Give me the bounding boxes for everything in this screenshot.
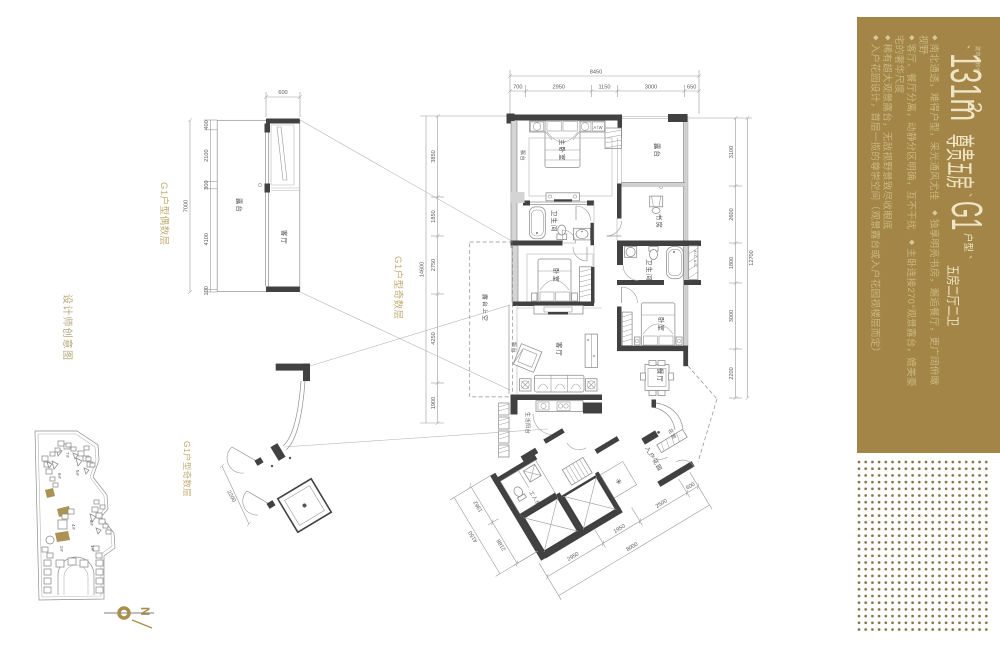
svg-text:3000: 3000 [645, 85, 657, 91]
svg-text:飘台: 飘台 [519, 150, 526, 161]
svg-text:2750: 2750 [431, 259, 437, 271]
svg-text:2950: 2950 [552, 85, 564, 91]
svg-text:A/W: A/W [594, 125, 604, 130]
svg-text:4250: 4250 [431, 332, 437, 344]
svg-text:客厅: 客厅 [280, 230, 289, 245]
svg-text:1#: 1# [90, 545, 95, 551]
svg-text:卫生间: 卫生间 [645, 259, 654, 282]
svg-text:650: 650 [687, 85, 696, 91]
svg-text:飘台: 飘台 [510, 342, 517, 353]
svg-text:3100: 3100 [729, 146, 735, 158]
svg-text:A/C A/C: A/C A/C [693, 250, 697, 268]
svg-text:主卧室: 主卧室 [558, 139, 567, 162]
svg-text:12700: 12700 [749, 250, 755, 266]
svg-text:1850: 1850 [431, 210, 437, 222]
svg-text:6#: 6# [57, 473, 62, 479]
svg-text:2200: 2200 [225, 490, 236, 504]
svg-text:1900: 1900 [431, 397, 437, 409]
svg-text:600: 600 [685, 482, 696, 492]
svg-text:7000: 7000 [184, 200, 190, 212]
svg-text:300: 300 [204, 180, 210, 189]
svg-text:卫生间: 卫生间 [550, 210, 559, 233]
svg-text:生活阳台: 生活阳台 [524, 412, 531, 434]
svg-text:露台: 露台 [235, 198, 244, 213]
svg-text:✳: ✳ [614, 476, 625, 487]
svg-text:7#: 7# [65, 452, 70, 458]
svg-text:5#: 5# [75, 470, 80, 476]
svg-text:600: 600 [278, 90, 287, 96]
svg-text:2100: 2100 [204, 149, 210, 161]
svg-text:2#: 2# [59, 546, 64, 552]
svg-text:餐厅: 餐厅 [656, 368, 665, 383]
svg-text:400: 400 [204, 120, 210, 129]
svg-text:3#: 3# [89, 520, 94, 526]
svg-text:N: N [138, 607, 152, 616]
svg-text:书房: 书房 [655, 214, 664, 229]
svg-text:3000: 3000 [729, 310, 735, 322]
svg-text:卧室: 卧室 [657, 317, 666, 332]
svg-text:露台上空: 露台上空 [481, 294, 489, 322]
svg-text:3850: 3850 [431, 150, 437, 162]
svg-text:卧室: 卧室 [552, 268, 561, 283]
svg-text:700: 700 [513, 85, 522, 91]
svg-text:14600: 14600 [420, 262, 426, 278]
svg-text:1150: 1150 [598, 85, 610, 91]
svg-text:2200: 2200 [729, 367, 735, 379]
svg-text:4100: 4100 [204, 233, 210, 245]
svg-text:露台: 露台 [653, 143, 662, 158]
svg-text:客厅: 客厅 [555, 342, 564, 357]
svg-text:1800: 1800 [729, 257, 735, 269]
svg-text:100: 100 [204, 286, 210, 295]
svg-text:2600: 2600 [729, 208, 735, 220]
svg-text:8450: 8450 [590, 70, 602, 76]
svg-text:4#: 4# [71, 524, 76, 530]
